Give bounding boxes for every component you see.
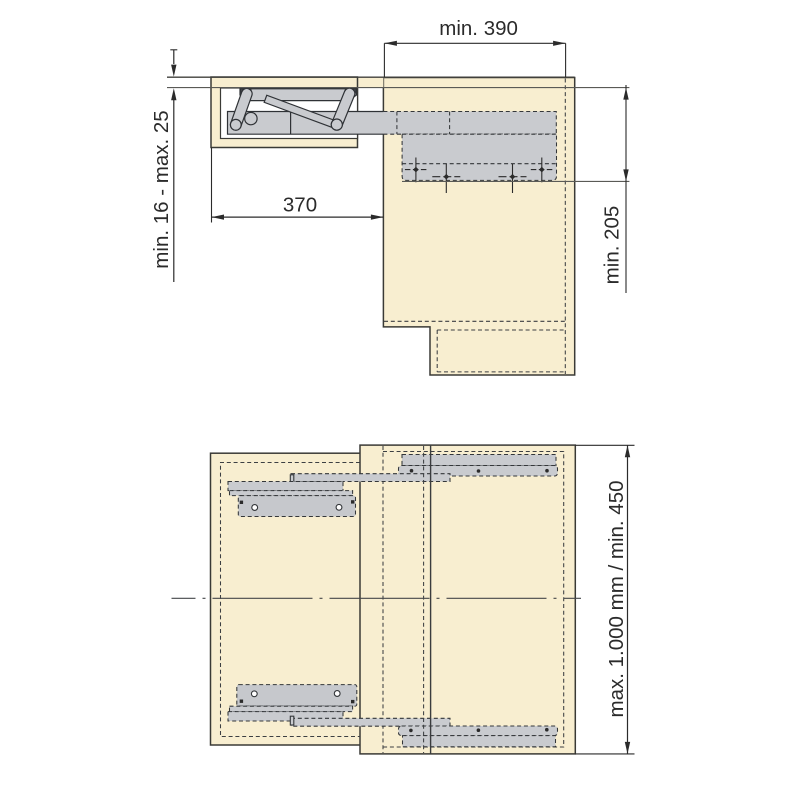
svg-text:min. 16 - max. 25: min. 16 - max. 25 <box>150 110 173 268</box>
svg-text:370: 370 <box>283 194 317 217</box>
svg-text:max. 1.000 mm / min. 450: max. 1.000 mm / min. 450 <box>605 481 628 718</box>
svg-text:min. 390: min. 390 <box>439 17 518 40</box>
svg-text:min. 205: min. 205 <box>601 206 624 285</box>
